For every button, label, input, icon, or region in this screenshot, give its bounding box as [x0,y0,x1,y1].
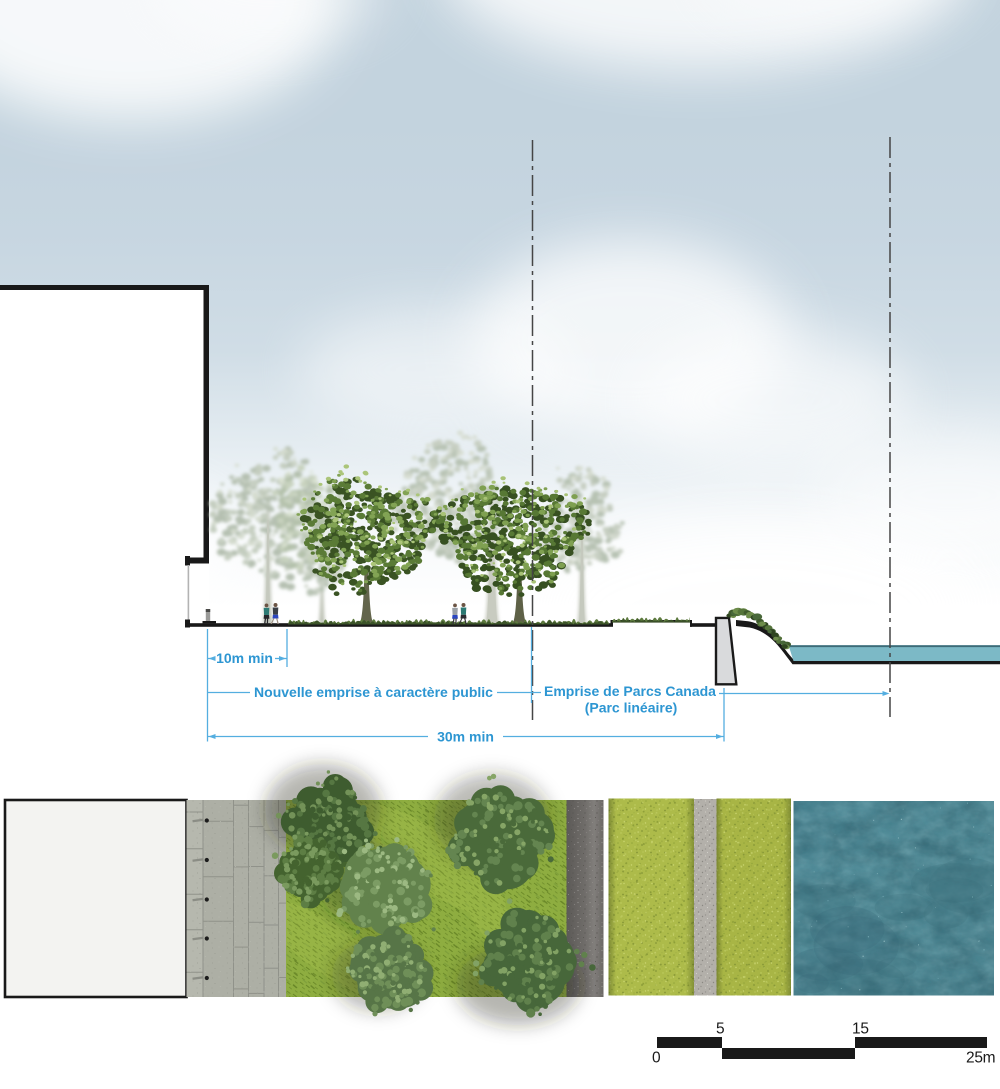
svg-text:15: 15 [852,1021,869,1038]
svg-text:30m min: 30m min [437,729,494,745]
svg-text:Nouvelle emprise à caractère p: Nouvelle emprise à caractère public [254,684,493,700]
svg-text:Emprise de Parcs Canada: Emprise de Parcs Canada [544,683,716,699]
svg-text:10m min: 10m min [216,650,273,666]
svg-text:5: 5 [716,1021,724,1038]
svg-text:(Parc linéaire): (Parc linéaire) [585,700,678,716]
svg-text:25m: 25m [966,1050,995,1067]
svg-text:0: 0 [652,1050,661,1067]
